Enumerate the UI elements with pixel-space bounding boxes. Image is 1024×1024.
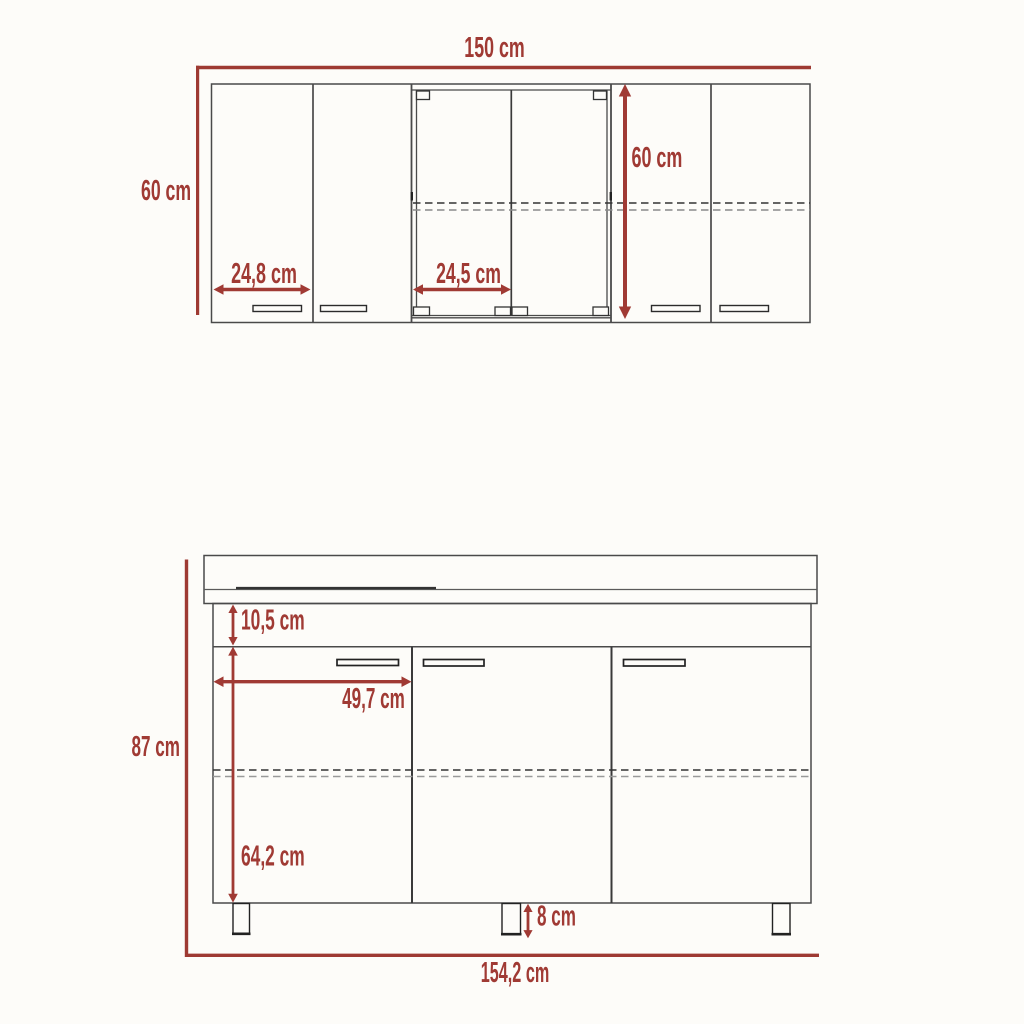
svg-text:60 cm: 60 cm <box>632 142 683 174</box>
svg-text:24,8 cm: 24,8 cm <box>231 258 297 290</box>
svg-text:150 cm: 150 cm <box>464 32 524 64</box>
svg-text:60 cm: 60 cm <box>141 176 191 207</box>
svg-text:49,7 cm: 49,7 cm <box>342 683 405 715</box>
svg-text:10,5 cm: 10,5 cm <box>241 605 305 636</box>
svg-text:154,2 cm: 154,2 cm <box>481 956 550 988</box>
svg-text:8 cm: 8 cm <box>537 900 576 932</box>
svg-text:87 cm: 87 cm <box>132 731 180 763</box>
svg-text:64,2 cm: 64,2 cm <box>241 841 305 872</box>
svg-text:24,5 cm: 24,5 cm <box>436 259 501 290</box>
